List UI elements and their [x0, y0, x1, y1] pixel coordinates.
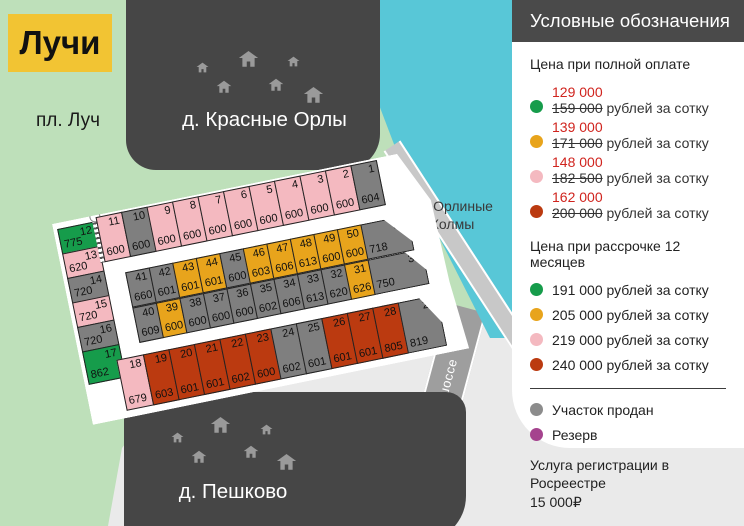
plot-number: 26	[332, 317, 346, 330]
plot-area: 600	[211, 310, 231, 324]
old-price-line: 200 000 рублей за сотку	[552, 205, 709, 222]
plot-area: 601	[333, 351, 353, 365]
area-label: пл. Луч	[36, 110, 100, 132]
project-title-badge: Лучи	[8, 14, 112, 72]
plot-number: 21	[205, 342, 219, 355]
plot-area: 600	[335, 197, 355, 211]
registration-note-line1: Услуга регистрации в Росреестре	[530, 457, 669, 492]
plot-number: 42	[158, 266, 172, 279]
legend-panel: Условные обозначения Цена при полной опл…	[512, 0, 744, 448]
legend-color-dot	[530, 403, 543, 416]
plot-number: 36	[236, 287, 250, 300]
plot-number: 28	[383, 306, 397, 319]
house-icon	[210, 416, 231, 434]
plot-area: 626	[352, 282, 372, 296]
house-icon	[191, 450, 207, 464]
plot-area: 601	[204, 275, 224, 289]
village-peshkovo-label: д. Пешково	[168, 480, 298, 504]
house-icon	[287, 56, 300, 67]
plot-number: 43	[181, 262, 195, 275]
plot-number: 24	[281, 327, 295, 340]
old-price: 171 000	[552, 135, 603, 151]
house-icon	[276, 453, 297, 471]
plot-number: 48	[299, 238, 313, 251]
plot-number: 3	[316, 174, 324, 186]
plot-number: 49	[322, 233, 336, 246]
plot-number: 4	[291, 179, 299, 191]
legend-row-label: 240 000 рублей за сотку	[552, 357, 709, 373]
plot-number: 32	[330, 268, 344, 281]
house-icon	[196, 62, 209, 73]
plot-number: 46	[252, 247, 266, 260]
plot-number: 2	[342, 169, 350, 181]
plot-area: 600	[322, 251, 342, 265]
old-price-line: 159 000 рублей за сотку	[552, 100, 709, 117]
plot-area: 679	[128, 393, 148, 407]
plot-number: 45	[228, 252, 242, 265]
plot-number: 25	[307, 322, 321, 335]
price-color-dot	[530, 205, 543, 218]
plot-area: 600	[208, 223, 228, 237]
price-row: 162 000200 000 рублей за сотку	[530, 189, 728, 222]
plot-number: 38	[189, 297, 203, 310]
legend-color-dot	[530, 283, 543, 296]
plot-area: 600	[259, 213, 279, 227]
plot-area: 601	[358, 346, 378, 360]
full-payment-title: Цена при полной оплате	[530, 56, 728, 72]
legend-body: Цена при полной оплате 129 000159 000 ру…	[512, 42, 744, 512]
registration-note-line2: 15 000₽	[530, 494, 582, 510]
plot-area: 600	[106, 244, 126, 258]
house-icon	[260, 424, 273, 435]
old-price: 200 000	[552, 205, 603, 221]
plot-area: 609	[141, 325, 161, 339]
plot-number: 31	[353, 263, 367, 276]
plot-area: 600	[256, 367, 276, 381]
price-color-dot	[530, 170, 543, 183]
plot-area: 606	[282, 296, 302, 310]
plot-area: 600	[235, 306, 255, 320]
plot-number: 29	[421, 298, 435, 311]
price-text: 148 000182 500 рублей за сотку	[552, 154, 709, 187]
price-color-dot	[530, 135, 543, 148]
status-rows: Участок проданРезерв	[530, 402, 728, 443]
new-price: 162 000	[552, 189, 709, 205]
plot-area: 600	[188, 315, 208, 329]
house-icon	[243, 445, 259, 459]
house-icon	[268, 78, 284, 92]
plot-number: 44	[205, 257, 219, 270]
plot-number: 41	[134, 271, 148, 284]
plot-area: 601	[205, 377, 225, 391]
plot-area: 601	[157, 285, 177, 299]
plot-number: 23	[256, 332, 270, 345]
old-price: 182 500	[552, 170, 603, 186]
price-row: 148 000182 500 рублей за сотку	[530, 154, 728, 187]
price-color-dot	[530, 100, 543, 113]
old-price-line: 182 500 рублей за сотку	[552, 170, 709, 187]
plot-area: 600	[131, 239, 151, 253]
plot-area: 805	[384, 341, 404, 355]
legend-row: 191 000 рублей за сотку	[530, 282, 728, 298]
plot-area: 600	[227, 270, 247, 284]
price-row: 139 000171 000 рублей за сотку	[530, 119, 728, 152]
plot-number: 20	[179, 348, 193, 361]
plot-number: 1	[367, 164, 375, 176]
legend-row-label: 219 000 рублей за сотку	[552, 332, 709, 348]
house-icon	[216, 80, 232, 94]
legend-color-dot	[530, 333, 543, 346]
plot-area: 660	[133, 289, 153, 303]
plot-number: 22	[230, 337, 244, 350]
plot-area: 602	[282, 361, 302, 375]
plot-number: 50	[346, 228, 360, 241]
village-krasnye-orly-label: д. Красные Орлы	[172, 108, 357, 132]
plot-area: 600	[164, 320, 184, 334]
house-icon	[303, 86, 324, 104]
plot-area: 613	[298, 256, 318, 270]
plot-number: 51	[392, 219, 406, 232]
plot-area: 600	[182, 229, 202, 243]
plot-area: 862	[90, 367, 110, 381]
plot-number: 40	[141, 306, 155, 319]
legend-row: Резерв	[530, 427, 728, 443]
plot-area: 603	[251, 266, 271, 280]
plot-area: 613	[305, 291, 325, 305]
new-price: 129 000	[552, 84, 709, 100]
site-plan-canvas: Симферопольское шоссе д. Красные Орлы д.…	[0, 0, 744, 526]
legend-row: 219 000 рублей за сотку	[530, 332, 728, 348]
plot-area: 602	[258, 301, 278, 315]
registration-note: Услуга регистрации в Росреестре 15 000₽	[530, 456, 728, 513]
plot-number: 18	[128, 358, 142, 371]
plot-number: 9	[164, 205, 172, 217]
village-krasnye-orly-area	[126, 0, 380, 170]
plot-area: 604	[361, 192, 381, 206]
plot-area: 601	[180, 280, 200, 294]
legend-row-label: Участок продан	[552, 402, 654, 418]
legend-row-label: 191 000 рублей за сотку	[552, 282, 709, 298]
plot-number: 35	[259, 283, 273, 296]
plot-area: 603	[154, 387, 174, 401]
plot-area: 601	[307, 356, 327, 370]
legend-row-label: 205 000 рублей за сотку	[552, 307, 709, 323]
plot-area: 718	[369, 242, 389, 256]
installment-title: Цена при рассрочке 12 месяцев	[530, 238, 728, 270]
plot-number: 6	[240, 190, 248, 202]
plot-number: 19	[154, 353, 168, 366]
plot-number: 10	[132, 210, 146, 223]
price-text: 129 000159 000 рублей за сотку	[552, 84, 709, 117]
new-price: 148 000	[552, 154, 709, 170]
plot-number: 34	[283, 278, 297, 291]
plot-number: 5	[266, 184, 274, 196]
plot-area: 602	[231, 372, 251, 386]
legend-color-dot	[530, 428, 543, 441]
plot-area: 750	[376, 277, 396, 291]
legend-row: 205 000 рублей за сотку	[530, 307, 728, 323]
plot-area: 600	[233, 218, 253, 232]
old-price: 159 000	[552, 100, 603, 116]
plot-area: 600	[310, 203, 330, 217]
plot-number: 7	[215, 195, 223, 207]
old-price-line: 171 000 рублей за сотку	[552, 135, 709, 152]
installment-rows: 191 000 рублей за сотку205 000 рублей за…	[530, 282, 728, 373]
plot-number: 11	[107, 216, 120, 229]
plot-number: 27	[358, 311, 372, 324]
house-icon	[238, 50, 259, 68]
plot-area: 819	[409, 335, 429, 349]
legend-color-dot	[530, 308, 543, 321]
plot-number: 47	[275, 242, 289, 255]
plot-number: 33	[306, 273, 320, 286]
full-payment-rows: 129 000159 000 рублей за сотку139 000171…	[530, 84, 728, 222]
plot-number: 30	[407, 252, 421, 265]
plot-area: 620	[329, 286, 349, 300]
house-icon	[171, 432, 184, 443]
price-row: 129 000159 000 рублей за сотку	[530, 84, 728, 117]
legend-row-label: Резерв	[552, 427, 597, 443]
legend-header: Условные обозначения	[512, 0, 744, 42]
legend-row: Участок продан	[530, 402, 728, 418]
plot-number: 8	[189, 200, 197, 212]
legend-divider	[530, 388, 726, 389]
price-text: 162 000200 000 рублей за сотку	[552, 189, 709, 222]
plot-number: 39	[165, 302, 179, 315]
price-text: 139 000171 000 рублей за сотку	[552, 119, 709, 152]
plot-area: 601	[180, 382, 200, 396]
plot-area: 600	[284, 208, 304, 222]
plot-area: 600	[157, 234, 177, 248]
plot-area: 606	[275, 261, 295, 275]
plot-area: 600	[345, 246, 365, 260]
legend-row: 240 000 рублей за сотку	[530, 357, 728, 373]
new-price: 139 000	[552, 119, 709, 135]
plot-number: 37	[212, 292, 226, 305]
legend-color-dot	[530, 358, 543, 371]
